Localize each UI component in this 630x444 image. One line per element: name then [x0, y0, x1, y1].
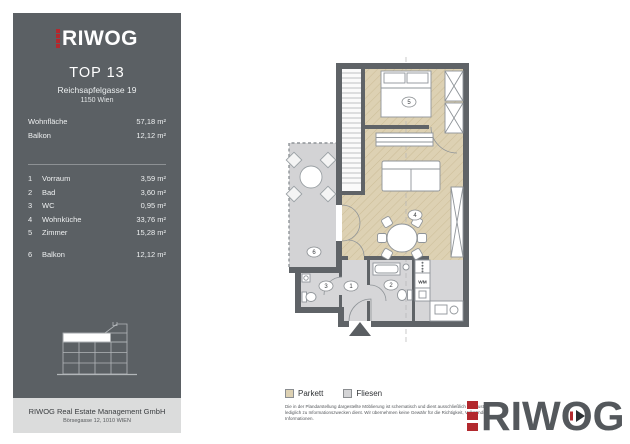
metric-label: Balkon: [28, 131, 51, 140]
toilet-tank: [408, 290, 413, 300]
room-no: 2: [28, 188, 42, 197]
sideboard: [376, 133, 433, 146]
riwog-logo-large: RIWOG: [467, 393, 627, 439]
highlighted-floor: [64, 334, 111, 342]
riwog-logo-text: RIWOG: [62, 28, 138, 49]
wm-label: WM: [418, 280, 427, 286]
sidebar: RIWOG TOP 13 Reichsapfelgasse 19 1150 Wi…: [13, 13, 181, 398]
logo-play-triangle-icon: [576, 410, 585, 422]
legend: Parkett Fliesen: [285, 389, 382, 398]
parkett-swatch: [285, 389, 294, 398]
room-name: Wohnküche: [42, 215, 136, 224]
company-address: Börsegasse 12, 1010 WIEN: [13, 418, 181, 424]
room-no: 5: [28, 228, 42, 237]
room-area: 15,28 m²: [136, 228, 166, 237]
staircase: [342, 69, 361, 191]
divider: [28, 164, 166, 165]
company-name: RIWOG Real Estate Management GmbH: [13, 398, 181, 416]
room-row-bad: 2 Bad 3,60 m²: [28, 188, 166, 197]
pillow: [384, 73, 405, 83]
legend-item-fliesen: Fliesen: [343, 389, 382, 398]
disclaimer-line-3: Informationen.: [285, 416, 485, 422]
metric-value: 57,18 m²: [136, 117, 166, 126]
unit-address-city: 1150 Wien: [13, 97, 181, 104]
room-no: 6: [28, 250, 42, 259]
fliesen-swatch: [343, 389, 352, 398]
washbasin: [403, 264, 409, 270]
floor-plan: WM 1 2 3 4 5 6: [281, 55, 488, 347]
metric-row-balkon: Balkon 12,12 m²: [28, 131, 166, 140]
entrance-arrow-icon: [349, 322, 371, 336]
room-area: 12,12 m²: [136, 250, 166, 259]
metric-row-wohnflaeche: Wohnfläche 57,18 m²: [28, 117, 166, 126]
dining-table: [387, 224, 417, 252]
room-name: Bad: [42, 188, 141, 197]
wc-sink: [302, 274, 310, 282]
riwog-logo-bars-icon: [467, 401, 478, 432]
area-metrics: Wohnfläche 57,18 m² Balkon 12,12 m²: [28, 117, 166, 140]
room-area: 3,60 m²: [141, 188, 166, 197]
room-no: 4: [28, 215, 42, 224]
room-area: 0,95 m²: [141, 201, 166, 210]
metric-value: 12,12 m²: [136, 131, 166, 140]
room-name: Zimmer: [42, 228, 136, 237]
riwog-logo: RIWOG: [13, 28, 181, 49]
room-name: Vorraum: [42, 174, 141, 183]
riwog-logo-bars-icon: [56, 29, 60, 48]
room-name: WC: [42, 201, 141, 210]
room-no: 3: [28, 201, 42, 210]
toilet: [398, 290, 407, 301]
room-row-wohnkueche: 4 Wohnküche 33,76 m²: [28, 215, 166, 224]
room-name: Balkon: [42, 250, 136, 259]
logo-red-dash-icon: [570, 412, 573, 421]
legend-label: Fliesen: [356, 389, 382, 398]
room-row-zimmer: 5 Zimmer 15,28 m²: [28, 228, 166, 237]
unit-title: TOP 13: [13, 65, 181, 81]
pillow: [407, 73, 428, 83]
sidebar-footer: RIWOG Real Estate Management GmbH Börseg…: [13, 398, 181, 433]
riwog-logo-large-text: RIWOG: [481, 396, 624, 437]
room-no: 1: [28, 174, 42, 183]
rooms-table: 1 Vorraum 3,59 m² 2 Bad 3,60 m² 3 WC 0,9…: [28, 174, 166, 259]
room-area: 33,76 m²: [136, 215, 166, 224]
legend-label: Parkett: [298, 389, 323, 398]
metric-label: Wohnfläche: [28, 117, 67, 126]
room-area: 3,59 m²: [141, 174, 166, 183]
balcony-table: [300, 166, 322, 188]
page: { "brand": { "name": "RIWOG", "red": "#b…: [0, 0, 630, 444]
oven: [415, 288, 430, 301]
room-row-balkon: 6 Balkon 12,12 m²: [28, 250, 166, 259]
disclaimer-line-2: lediglich zu Informationszwecken dient. …: [285, 410, 485, 416]
disclaimer: Die in der Plandarstellung dargestellte …: [285, 404, 485, 422]
building-section-diagram: [13, 322, 181, 380]
room-row-wc: 3 WC 0,95 m²: [28, 201, 166, 210]
wc-toilet: [306, 293, 316, 302]
legend-item-parkett: Parkett: [285, 389, 323, 398]
room-row-vorraum: 1 Vorraum 3,59 m²: [28, 174, 166, 183]
unit-address-street: Reichsapfelgasse 19: [13, 85, 181, 95]
